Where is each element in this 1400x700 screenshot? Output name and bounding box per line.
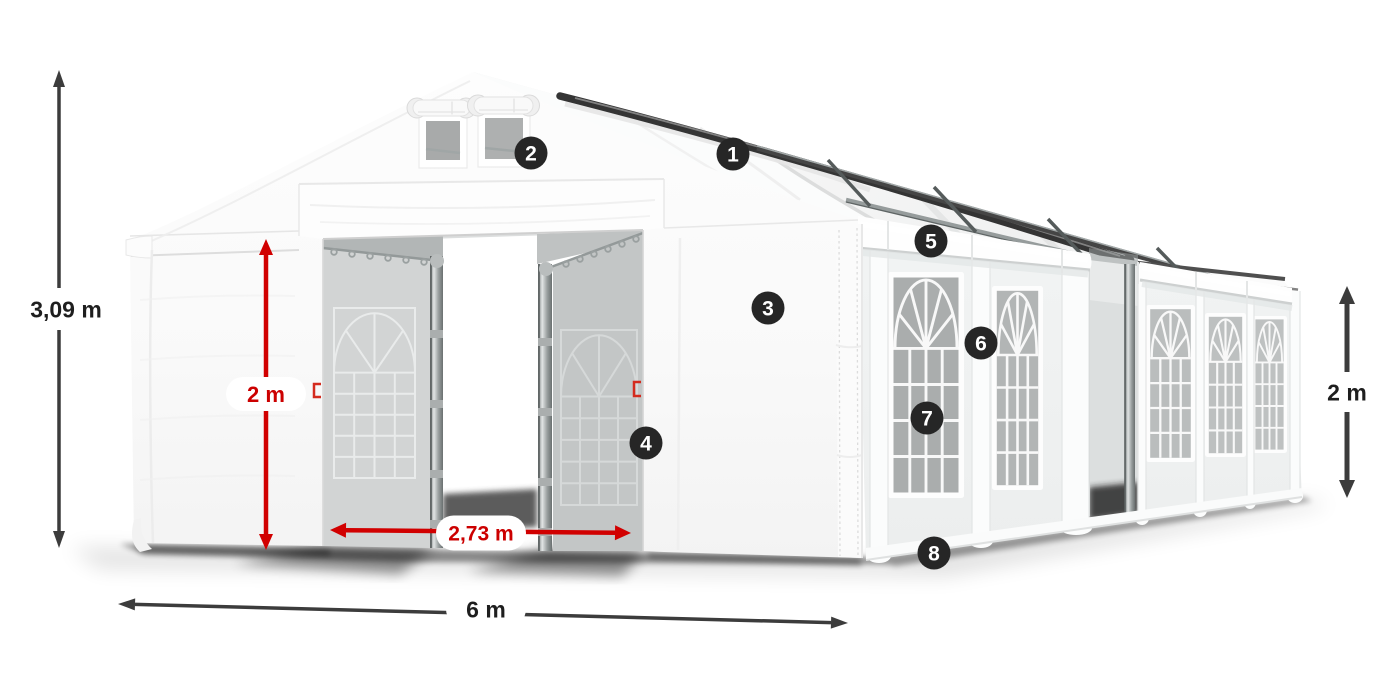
svg-text:5: 5 <box>925 231 937 254</box>
svg-text:4: 4 <box>640 433 652 456</box>
svg-text:6: 6 <box>975 333 987 356</box>
svg-text:2 m: 2 m <box>1327 379 1367 405</box>
svg-text:8: 8 <box>928 543 940 566</box>
svg-text:7: 7 <box>921 408 933 431</box>
svg-text:1: 1 <box>727 144 739 167</box>
svg-text:3: 3 <box>762 298 774 321</box>
svg-text:3,09 m: 3,09 m <box>30 296 102 322</box>
svg-text:2,73 m: 2,73 m <box>448 523 513 546</box>
svg-text:2 m: 2 m <box>247 382 285 407</box>
svg-text:2: 2 <box>525 143 537 166</box>
svg-text:6 m: 6 m <box>466 596 506 622</box>
